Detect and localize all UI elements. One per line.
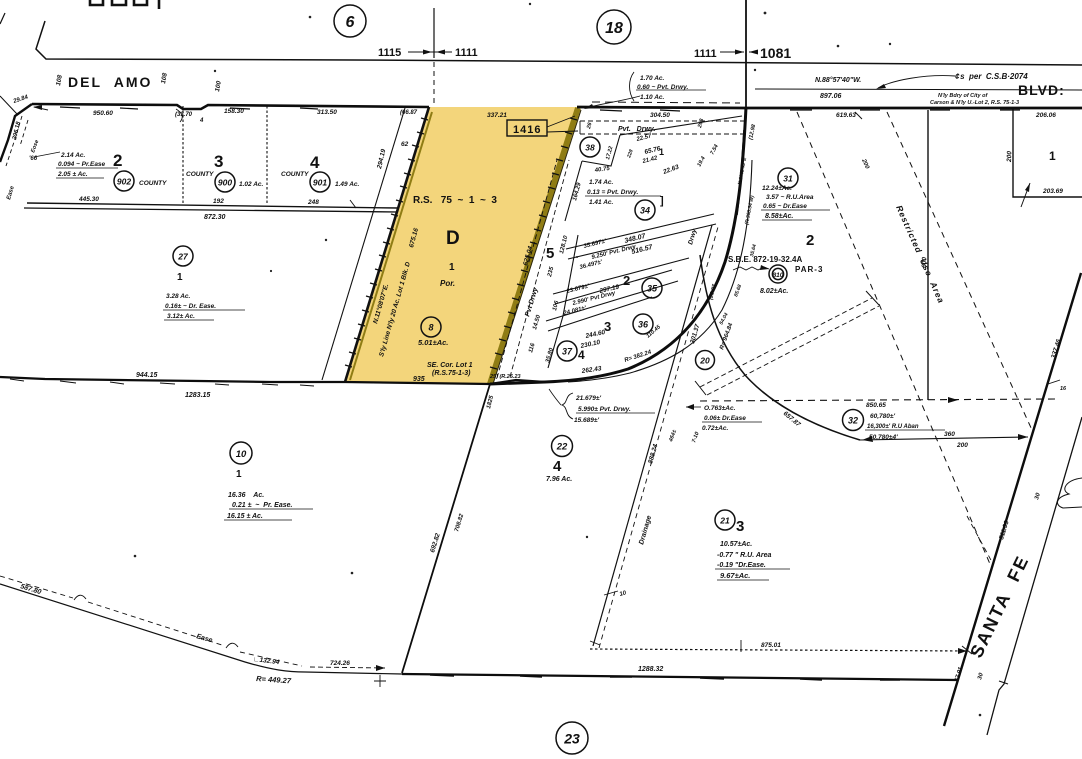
svg-text:337.21: 337.21 — [487, 112, 507, 119]
svg-text:1: 1 — [236, 469, 242, 480]
svg-text:902: 902 — [117, 177, 131, 187]
svg-text:25) (R.25.23: 25) (R.25.23 — [489, 374, 521, 380]
svg-text:7.96 Ac.: 7.96 Ac. — [546, 476, 572, 483]
svg-text:901: 901 — [313, 178, 327, 188]
svg-text:2: 2 — [806, 232, 814, 249]
svg-text:810: 810 — [773, 272, 784, 279]
svg-text:-0.19 "Dr.Ease.: -0.19 "Dr.Ease. — [717, 562, 766, 569]
svg-text:1416: 1416 — [513, 124, 541, 136]
svg-text:900: 900 — [218, 178, 232, 188]
svg-text:COUNTY: COUNTY — [186, 171, 214, 178]
svg-text:897.06: 897.06 — [820, 93, 842, 100]
svg-text:12.24±Ac.: 12.24±Ac. — [762, 185, 792, 192]
svg-text:158.30: 158.30 — [224, 108, 244, 115]
svg-text:724.26: 724.26 — [330, 660, 350, 667]
svg-text:35: 35 — [647, 284, 658, 294]
svg-text:22: 22 — [556, 442, 568, 453]
svg-text:1.10 Ac.: 1.10 Ac. — [640, 94, 665, 101]
svg-text:0.72±Ac.: 0.72±Ac. — [702, 425, 729, 432]
svg-text:COUNTY: COUNTY — [281, 171, 309, 178]
svg-text:1283.15: 1283.15 — [185, 392, 210, 399]
svg-text:3: 3 — [214, 152, 223, 171]
svg-text:0.65 ~ Dr.Ease: 0.65 ~ Dr.Ease — [763, 203, 807, 210]
svg-text:360: 360 — [944, 431, 955, 438]
svg-text:8.58±Ac.: 8.58±Ac. — [765, 213, 793, 220]
svg-text:4: 4 — [553, 458, 562, 475]
svg-text:(33.70: (33.70 — [175, 112, 193, 118]
svg-text:3.28 Ac.: 3.28 Ac. — [166, 293, 191, 300]
svg-text:248: 248 — [307, 199, 319, 206]
svg-text:4: 4 — [199, 118, 204, 124]
svg-text:0.16± ~ Dr. Ease.: 0.16± ~ Dr. Ease. — [165, 303, 216, 310]
svg-text:27: 27 — [177, 252, 189, 262]
svg-text:313.50: 313.50 — [317, 109, 337, 116]
svg-text:2: 2 — [113, 151, 122, 170]
svg-text:3: 3 — [736, 518, 744, 535]
svg-text:Carson & N'ly U.-Lot 2, R.S. 7: Carson & N'ly U.-Lot 2, R.S. 75-1-3 — [930, 100, 1019, 106]
svg-text:8.02±Ac.: 8.02±Ac. — [760, 288, 788, 295]
svg-text:0.21 ± ~ Pr. Ease.: 0.21 ± ~ Pr. Ease. — [232, 502, 293, 509]
svg-text:5.990± Pvt. Drwy.: 5.990± Pvt. Drwy. — [578, 406, 631, 413]
svg-text:619.63: 619.63 — [836, 112, 856, 119]
svg-text:3: 3 — [604, 319, 611, 334]
svg-text:34: 34 — [640, 206, 650, 216]
svg-text:6: 6 — [346, 14, 355, 31]
svg-text:872.30: 872.30 — [204, 214, 226, 221]
svg-text:O.763±Ac.: O.763±Ac. — [704, 405, 736, 412]
svg-text:1115: 1115 — [378, 47, 401, 59]
svg-text:1.70 Ac.: 1.70 Ac. — [640, 75, 665, 82]
svg-text:BLVD:: BLVD: — [1018, 82, 1065, 98]
svg-text:0.60 ~ Pvt. Drwy.: 0.60 ~ Pvt. Drwy. — [637, 84, 688, 91]
svg-text:0.094 ~ Pr.Ease: 0.094 ~ Pr.Ease — [58, 161, 106, 168]
svg-text:32: 32 — [848, 416, 858, 426]
svg-text:2.05 ± Ac.: 2.05 ± Ac. — [57, 171, 88, 178]
svg-text:3.12± Ac.: 3.12± Ac. — [167, 313, 195, 320]
svg-text:1111: 1111 — [455, 47, 478, 59]
svg-text:37: 37 — [562, 347, 573, 357]
svg-text:(66.87: (66.87 — [400, 110, 418, 116]
svg-text:31: 31 — [783, 174, 793, 184]
svg-text:R.S. 75 ~ 1 ~ 3: R.S. 75 ~ 1 ~ 3 — [413, 195, 497, 206]
svg-text:¢ s per C.S.B·2074: ¢ s per C.S.B·2074 — [955, 72, 1028, 81]
svg-text:PAR-3: PAR-3 — [795, 265, 823, 274]
svg-text:21: 21 — [719, 516, 730, 526]
svg-text:1.02 Ac.: 1.02 Ac. — [239, 181, 264, 188]
svg-text:9.67±Ac.: 9.67±Ac. — [720, 571, 750, 580]
svg-text:62: 62 — [401, 141, 409, 148]
svg-text:10.57±Ac.: 10.57±Ac. — [720, 541, 752, 548]
svg-text:935: 935 — [413, 376, 425, 383]
svg-text:1: 1 — [449, 262, 455, 273]
svg-text:38: 38 — [585, 143, 595, 153]
svg-text:(R.S.75-1-3): (R.S.75-1-3) — [432, 370, 471, 377]
svg-text:4: 4 — [310, 153, 320, 172]
svg-text:4: 4 — [578, 348, 585, 362]
svg-text:944.15: 944.15 — [136, 372, 158, 379]
svg-text:N'ly Bdry of City of: N'ly Bdry of City of — [938, 93, 988, 99]
svg-text:20: 20 — [699, 356, 710, 366]
svg-text:D: D — [446, 228, 460, 249]
svg-text:50,780±4': 50,780±4' — [869, 434, 898, 441]
svg-text:206.06: 206.06 — [1035, 112, 1056, 119]
svg-text:16,300±' R.U Aban: 16,300±' R.U Aban — [867, 424, 919, 430]
svg-text:2.14 Ac.: 2.14 Ac. — [60, 152, 86, 159]
svg-text:18: 18 — [605, 20, 623, 37]
svg-text:S.B.E. 872-19-32.4A: S.B.E. 872-19-32.4A — [728, 255, 802, 264]
svg-text:200: 200 — [956, 442, 968, 449]
svg-text:2: 2 — [623, 273, 630, 288]
svg-text:850.65: 850.65 — [866, 402, 886, 409]
svg-text:]: ] — [660, 195, 664, 207]
svg-text:5.01±Ac.: 5.01±Ac. — [418, 338, 448, 347]
svg-text:3.57 ~ R.U.Area: 3.57 ~ R.U.Area — [766, 194, 814, 201]
svg-text:950.60: 950.60 — [93, 110, 113, 117]
svg-text:1111: 1111 — [694, 48, 717, 60]
svg-text:1: 1 — [1049, 149, 1056, 163]
svg-text:Pvt. Drwy.: Pvt. Drwy. — [618, 126, 656, 133]
svg-text:15.689±': 15.689±' — [574, 417, 599, 424]
svg-text:16: 16 — [1060, 386, 1067, 392]
svg-text:445.30: 445.30 — [78, 196, 99, 203]
svg-text:875.01: 875.01 — [761, 642, 781, 649]
svg-text:23: 23 — [563, 731, 580, 747]
svg-text:16.15 ± Ac.: 16.15 ± Ac. — [227, 513, 263, 520]
svg-text:1.41 Ac.: 1.41 Ac. — [589, 199, 614, 206]
svg-text:36: 36 — [638, 320, 649, 330]
svg-text:1081: 1081 — [760, 45, 791, 61]
svg-text:SE. Cor. Lot 1: SE. Cor. Lot 1 — [427, 362, 473, 369]
svg-text:21.679±': 21.679±' — [575, 395, 601, 402]
svg-text:1.49 Ac.: 1.49 Ac. — [335, 181, 360, 188]
svg-text:N.88°57'40"W.: N.88°57'40"W. — [815, 76, 861, 84]
svg-text:'66: '66 — [29, 156, 38, 162]
svg-text:Por.: Por. — [440, 279, 455, 288]
svg-text:8: 8 — [428, 323, 433, 333]
svg-text:0.06± Dr.Ease: 0.06± Dr.Ease — [704, 415, 746, 422]
svg-text:COUNTY: COUNTY — [139, 180, 167, 187]
svg-text:1288.32: 1288.32 — [638, 666, 663, 673]
svg-text:200: 200 — [1006, 151, 1013, 163]
svg-text:203.69: 203.69 — [1042, 188, 1063, 195]
svg-text:10: 10 — [236, 449, 247, 460]
svg-text:16.36 Ac.: 16.36 Ac. — [228, 492, 264, 499]
svg-text:1: 1 — [177, 272, 183, 283]
svg-text:-0.77 " R.U. Area: -0.77 " R.U. Area — [717, 552, 772, 559]
svg-text:0.13 = Pvt. Drwy.: 0.13 = Pvt. Drwy. — [587, 189, 638, 196]
svg-text:304.50: 304.50 — [650, 112, 670, 119]
svg-text:1.74 Ac.: 1.74 Ac. — [589, 179, 614, 186]
svg-text:60,780±': 60,780±' — [870, 413, 895, 420]
svg-text:DEL AMO: DEL AMO — [68, 74, 152, 90]
svg-text:5: 5 — [546, 245, 554, 262]
svg-text:192: 192 — [213, 198, 224, 205]
